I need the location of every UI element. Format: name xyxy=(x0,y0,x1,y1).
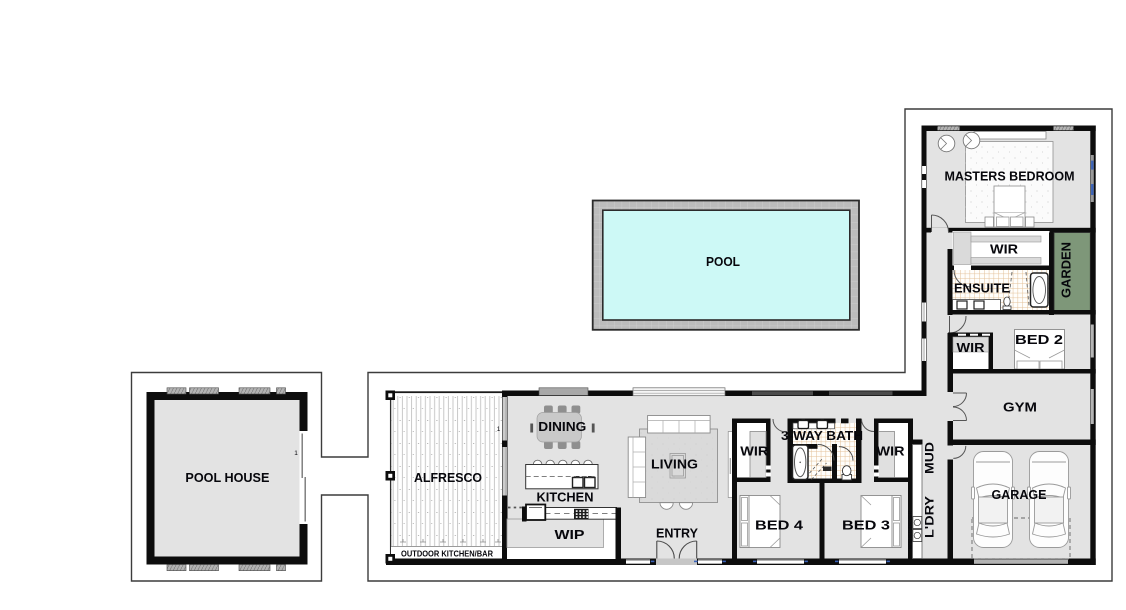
svg-text:POOL HOUSE: POOL HOUSE xyxy=(185,470,269,485)
svg-text:POOL: POOL xyxy=(706,254,740,269)
svg-text:GYM: GYM xyxy=(1003,400,1037,415)
svg-text:BED 2: BED 2 xyxy=(1015,332,1063,347)
svg-text:1: 1 xyxy=(294,450,298,457)
svg-text:BED 3: BED 3 xyxy=(842,518,890,533)
svg-text:MASTERS BEDROOM: MASTERS BEDROOM xyxy=(945,169,1075,184)
svg-text:3-WAY BATH: 3-WAY BATH xyxy=(781,428,863,443)
svg-text:WIR: WIR xyxy=(957,340,986,355)
svg-text:GARAGE: GARAGE xyxy=(992,487,1047,502)
svg-text:MUD: MUD xyxy=(923,442,937,474)
svg-text:DINING: DINING xyxy=(538,419,586,434)
svg-text:BED 4: BED 4 xyxy=(755,518,804,533)
svg-text:L'DRY: L'DRY xyxy=(923,496,937,538)
svg-text:WIR: WIR xyxy=(990,242,1019,257)
svg-text:ENSUITE: ENSUITE xyxy=(954,281,1010,296)
svg-text:KITCHEN: KITCHEN xyxy=(537,490,594,505)
svg-text:ENTRY: ENTRY xyxy=(656,526,698,541)
svg-text:1: 1 xyxy=(497,426,501,433)
svg-text:W'SHER/DRYER: W'SHER/DRYER xyxy=(908,510,914,549)
svg-text:LIVING: LIVING xyxy=(651,457,698,472)
svg-text:ALFRESCO: ALFRESCO xyxy=(414,470,482,485)
svg-text:OUTDOOR KITCHEN/BAR: OUTDOOR KITCHEN/BAR xyxy=(401,549,493,559)
svg-text:WIP: WIP xyxy=(555,527,585,542)
svg-text:WIR: WIR xyxy=(877,444,906,459)
svg-text:GARDEN: GARDEN xyxy=(1059,242,1074,298)
svg-text:WIR: WIR xyxy=(740,444,769,459)
